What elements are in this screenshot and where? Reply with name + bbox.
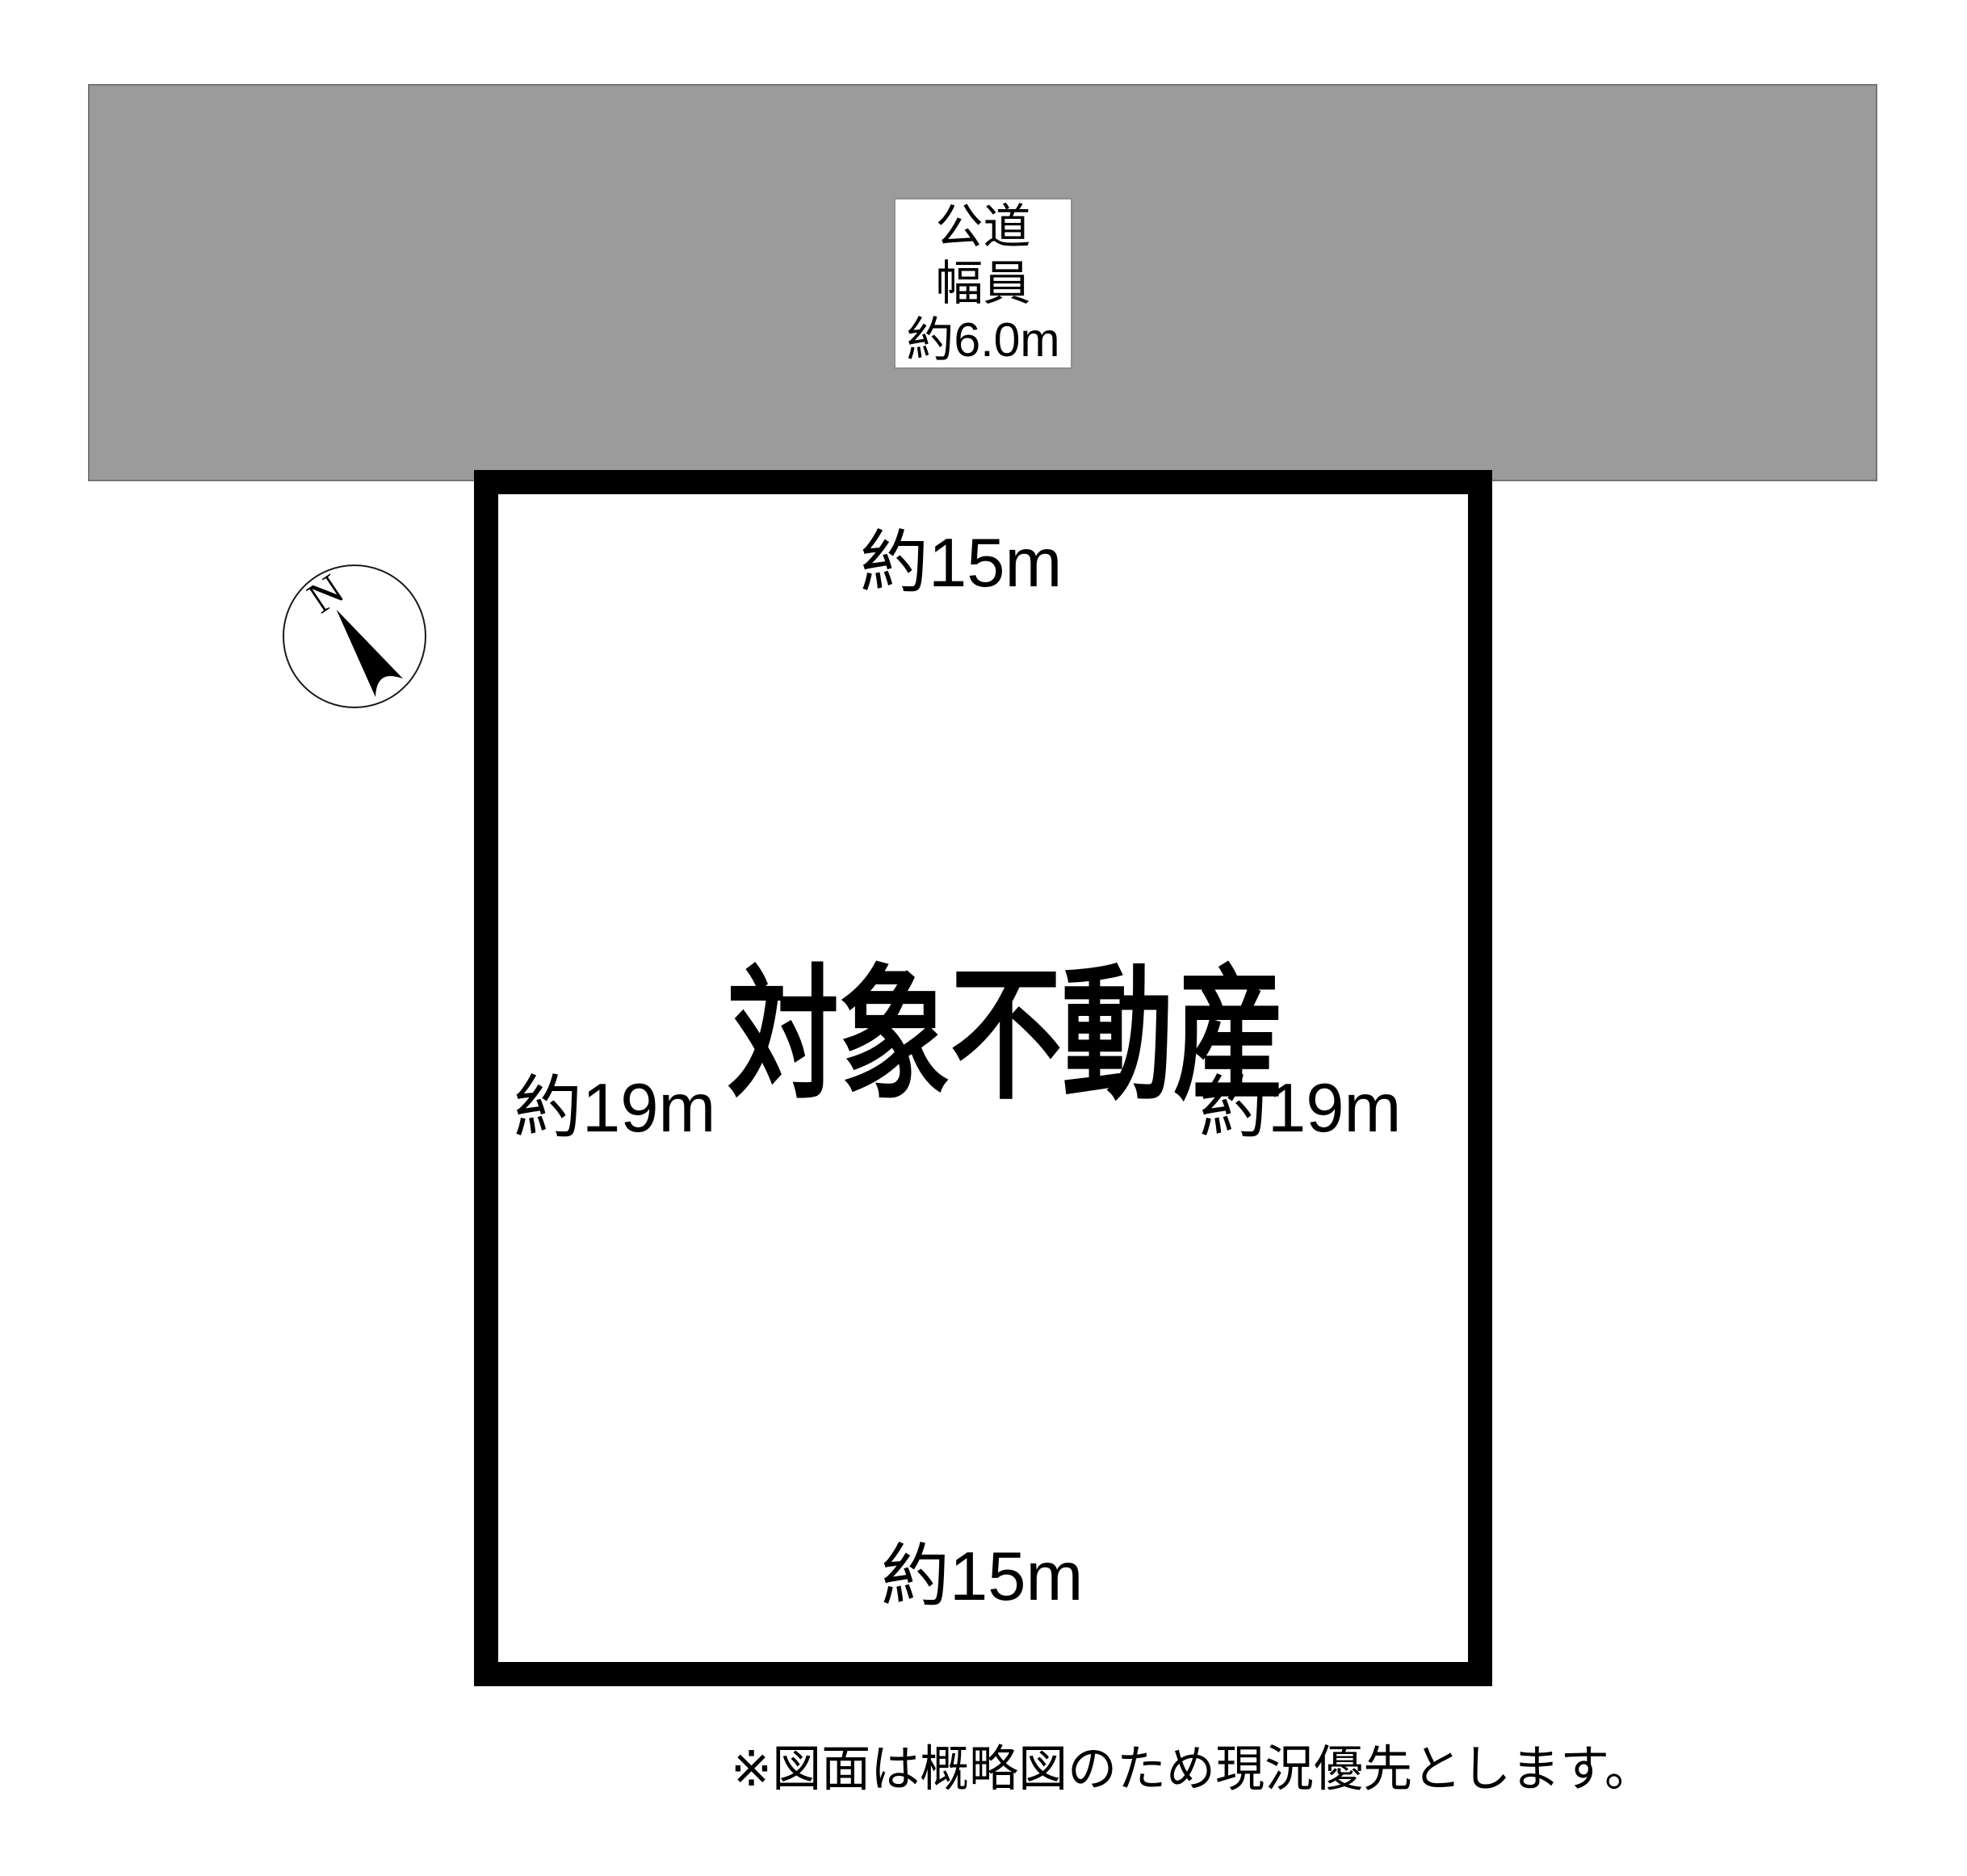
- dimension-right: 約19m: [1199, 1074, 1401, 1143]
- road-label-box: 公道 幅員 約6.0m: [894, 198, 1072, 369]
- dimension-left: 約19m: [514, 1074, 715, 1143]
- north-compass: N: [274, 556, 435, 717]
- road-label-line-1: 公道: [935, 199, 1030, 255]
- road-label-line-3: 約6.0m: [906, 312, 1059, 368]
- road-label-line-2: 幅員: [935, 255, 1030, 312]
- dimension-top: 約15m: [860, 529, 1062, 598]
- disclaimer-note: ※図面は概略図のため現況優先とします。: [731, 1741, 1654, 1796]
- dimension-bottom: 約15m: [881, 1542, 1083, 1611]
- site-plan-canvas: 公道 幅員 約6.0m N 対象不動産 約15m 約19m 約19m 約15m …: [0, 0, 1967, 1876]
- road-area: 公道 幅員 約6.0m: [88, 84, 1877, 481]
